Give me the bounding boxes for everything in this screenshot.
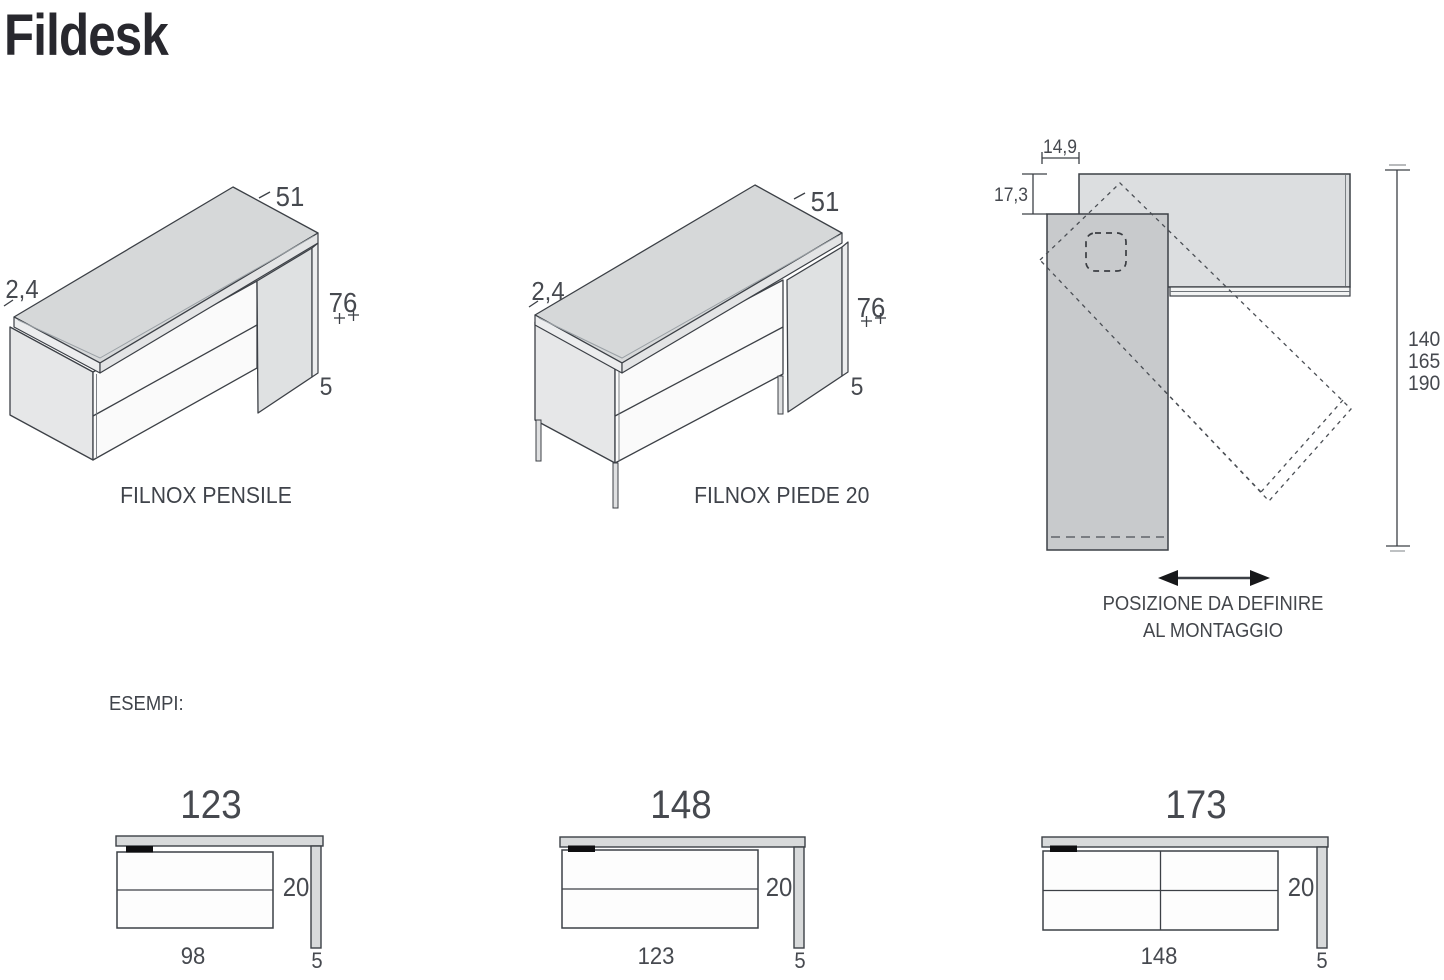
example-3-panel-dim: 5 — [1309, 949, 1335, 972]
plan-rotated-desk-inner-line-2 — [1158, 384, 1261, 492]
plan-position-note-line2: AL MONTAGGIO — [1087, 618, 1339, 645]
pensile-height-dim: 76 — [323, 288, 363, 317]
piede-leg-front-right — [778, 376, 783, 414]
plan-position-double-arrow — [1158, 570, 1270, 586]
plan-offset-depth-dim: 17,3 — [988, 186, 1034, 206]
example-3-cabinet-dim: 148 — [1134, 944, 1184, 969]
example-1-desktop-bar — [116, 836, 323, 846]
plan-position-note-line1: POSIZIONE DA DEFINIRE — [1087, 591, 1339, 618]
example-2-desktop-bar — [560, 837, 805, 847]
piede-side-panel-edge — [842, 242, 848, 376]
page-title: Fildesk — [4, 2, 168, 69]
example-2-handle — [568, 846, 595, 853]
pensile-panel-dim: 5 — [312, 374, 340, 400]
pensile-thickness-dim: 2,4 — [1, 276, 43, 303]
example-3-desktop-bar — [1042, 837, 1328, 847]
example-2-total-dim: 148 — [647, 784, 715, 826]
example-1-panel-dim: 5 — [304, 949, 330, 972]
pensile-side-panel-edge — [312, 243, 318, 377]
pensile-depth-tick — [259, 192, 270, 198]
example-1-cabinet-dim: 98 — [173, 944, 213, 969]
plan-length-option-1: 140 — [1408, 329, 1440, 351]
piede-drawing — [529, 185, 886, 508]
examples-heading: ESEMPI: — [109, 694, 184, 715]
piede-height-dim: 76 — [851, 293, 891, 322]
piede-depth-dim: 51 — [805, 187, 845, 216]
example-1-total-dim: 123 — [177, 784, 245, 826]
piede-depth-tick — [794, 193, 805, 199]
pensile-caption: FILNOX PENSILE — [120, 483, 284, 507]
example-3-handle — [1050, 846, 1077, 853]
example-2-cabinet-dim: 123 — [631, 944, 681, 969]
plan-offset-width-dim: 14,9 — [1037, 138, 1083, 158]
piede-leg-back-left — [536, 420, 541, 461]
piede-thickness-dim: 2,4 — [527, 278, 569, 305]
plan-length-option-3: 190 — [1408, 373, 1440, 395]
piede-side-panel-face — [787, 247, 842, 412]
pensile-depth-dim: 51 — [270, 182, 310, 211]
example-1-handle — [126, 846, 153, 853]
example-1-gap-dim: 20 — [278, 874, 315, 901]
example-2-gap-dim: 20 — [761, 874, 798, 901]
example-3-gap-dim: 20 — [1283, 874, 1320, 901]
plan-rotated-desk-inner-line-1 — [1261, 400, 1343, 492]
example-3-total-dim: 173 — [1162, 784, 1230, 826]
pensile-drawing — [4, 187, 359, 460]
piede-leg-front-left — [613, 463, 618, 508]
plan-side-panel-rect — [1047, 214, 1168, 550]
plan-position-note: POSIZIONE DA DEFINIRE AL MONTAGGIO — [1087, 591, 1339, 645]
plan-length-dimension-line — [1385, 165, 1410, 551]
plan-length-option-2: 165 — [1408, 351, 1440, 373]
piede-panel-dim: 5 — [843, 374, 871, 400]
example-2-panel-dim: 5 — [787, 949, 813, 972]
plan-drawing — [1022, 152, 1410, 586]
piede-caption: FILNOX PIEDE 20 — [694, 483, 858, 507]
technical-sheet: Fildesk 51 2,4 76 5 FILNOX PENSILE 51 2,… — [0, 0, 1444, 980]
